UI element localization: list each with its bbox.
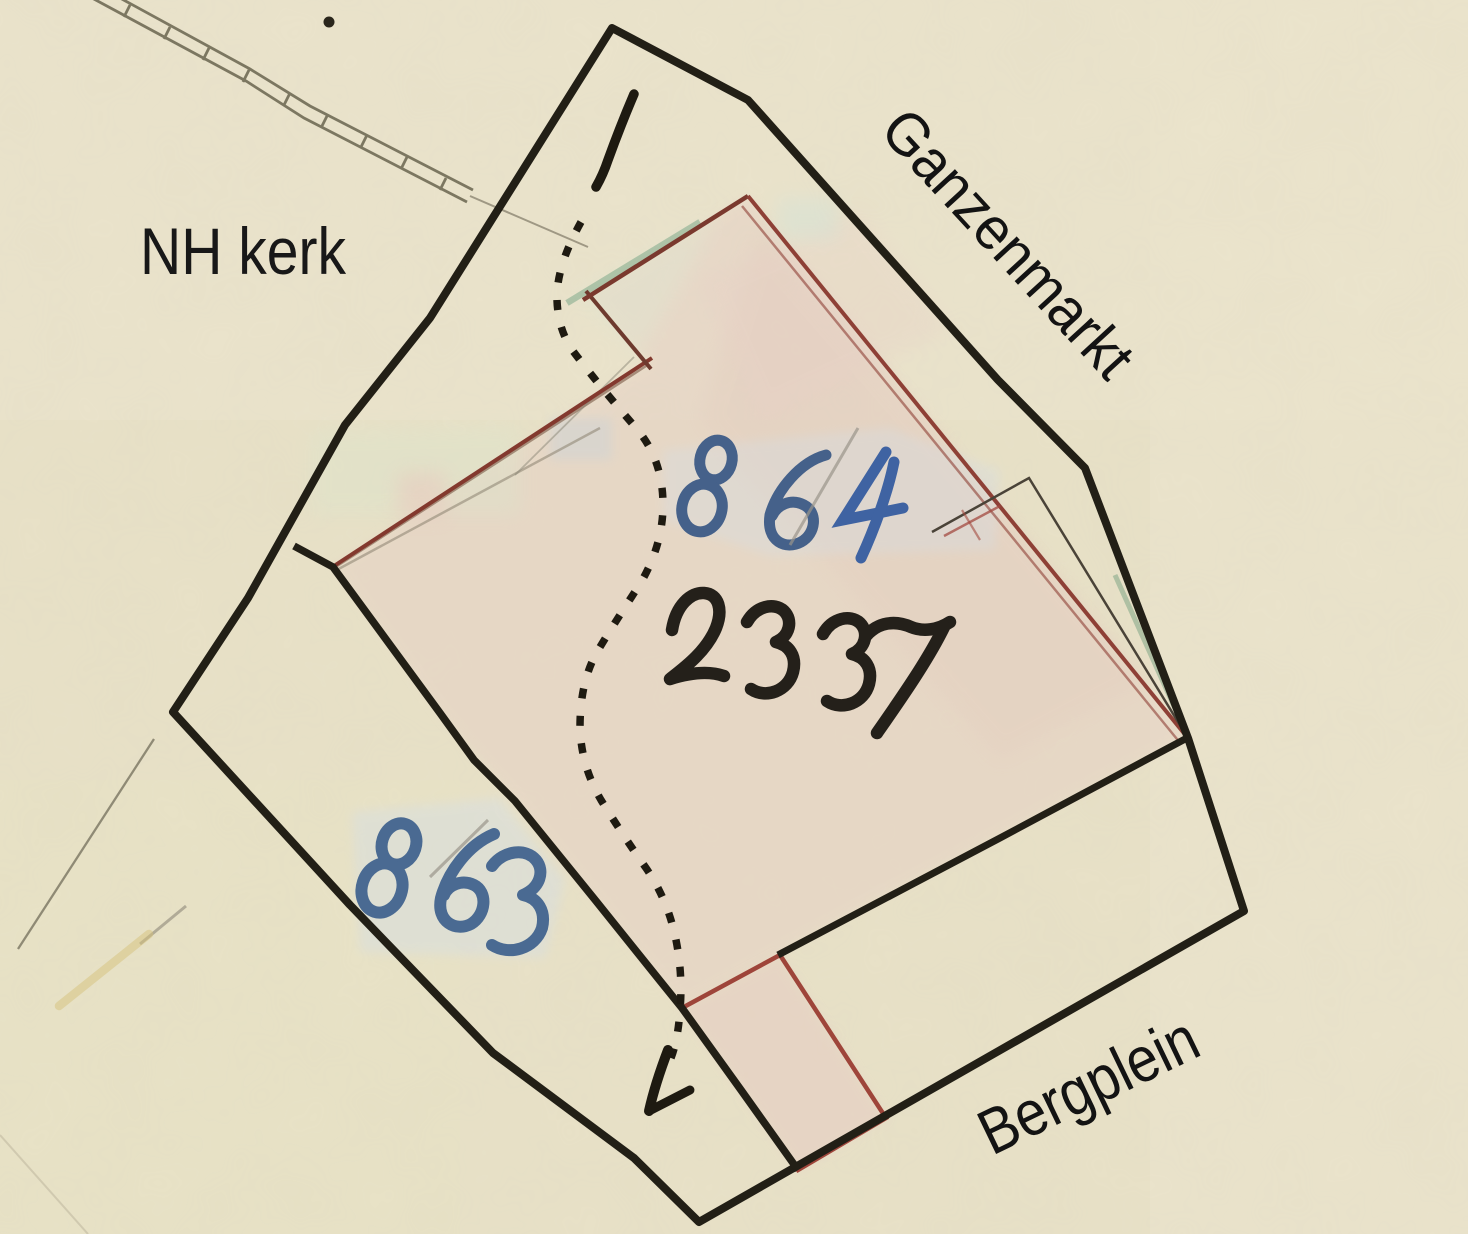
svg-text:NH kerk: NH kerk bbox=[140, 214, 347, 288]
